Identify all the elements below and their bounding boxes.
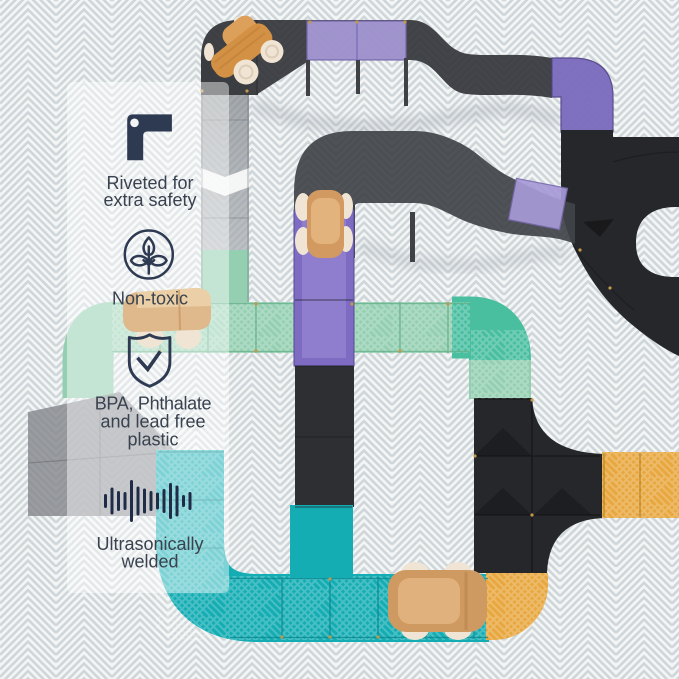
svg-text:and lead free: and lead free	[100, 412, 205, 432]
svg-text:welded: welded	[120, 552, 178, 572]
svg-text:extra safety: extra safety	[103, 190, 196, 210]
svg-text:plastic: plastic	[127, 430, 178, 450]
svg-text:BPA, Phthalate: BPA, Phthalate	[95, 394, 212, 414]
svg-text:Non-toxic: Non-toxic	[112, 289, 188, 309]
